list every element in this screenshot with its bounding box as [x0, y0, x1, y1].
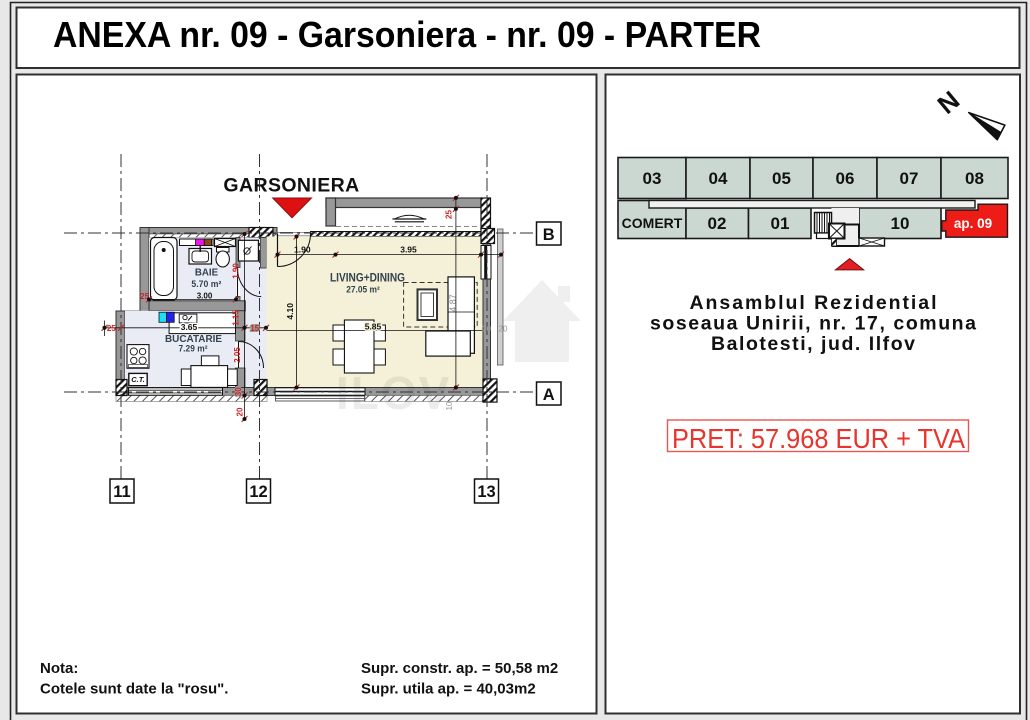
svg-text:soseaua Unirii, nr. 17, comuna: soseaua Unirii, nr. 17, comuna [650, 313, 976, 335]
svg-text:7.29 m²: 7.29 m² [179, 344, 208, 354]
svg-text:13: 13 [477, 483, 495, 501]
svg-text:3.65: 3.65 [181, 322, 198, 332]
svg-text:03: 03 [643, 169, 662, 188]
svg-text:GARSONIERA: GARSONIERA [223, 175, 359, 197]
svg-text:5.85: 5.85 [365, 321, 382, 331]
svg-text:5.70 m²: 5.70 m² [191, 279, 221, 289]
svg-text:Supr. constr. ap. = 50,58 m2: Supr. constr. ap. = 50,58 m2 [361, 660, 558, 677]
svg-text:Nota:: Nota: [40, 660, 78, 677]
svg-text:01: 01 [771, 214, 790, 233]
svg-text:02: 02 [708, 214, 727, 233]
svg-text:4.87: 4.87 [448, 294, 458, 312]
svg-text:25: 25 [107, 324, 116, 333]
svg-text:ANEXA nr. 09 - Garsoniera - nr: ANEXA nr. 09 - Garsoniera - nr. 09 - PAR… [53, 14, 761, 55]
svg-text:3.95: 3.95 [400, 244, 417, 254]
svg-text:LIVING+DINING: LIVING+DINING [330, 273, 405, 285]
svg-text:Supr. utila ap. = 40,03m2: Supr. utila ap. = 40,03m2 [361, 681, 536, 698]
svg-text:20: 20 [236, 407, 245, 416]
svg-text:20: 20 [499, 325, 508, 334]
svg-text:Cotele sunt date la "rosu".: Cotele sunt date la "rosu". [40, 681, 228, 698]
svg-text:05: 05 [772, 169, 791, 188]
svg-text:10: 10 [891, 214, 910, 233]
svg-text:1.90: 1.90 [232, 263, 241, 279]
svg-text:A: A [543, 386, 555, 404]
svg-text:PRET: 57.968 EUR + TVA: PRET: 57.968 EUR + TVA [672, 423, 965, 454]
svg-text:15: 15 [250, 324, 259, 333]
svg-text:ILOV: ILOV [336, 367, 451, 419]
svg-text:COMERT: COMERT [622, 215, 683, 231]
svg-text:27.05 m²: 27.05 m² [346, 285, 380, 295]
svg-text:3.00: 3.00 [197, 292, 213, 301]
svg-text:04: 04 [709, 169, 728, 188]
svg-text:4.10: 4.10 [285, 303, 295, 320]
svg-text:2.05: 2.05 [233, 347, 242, 363]
svg-text:30: 30 [482, 325, 491, 334]
svg-text:11: 11 [113, 483, 130, 501]
svg-text:C.T.: C.T. [131, 375, 145, 384]
svg-text:07: 07 [900, 169, 919, 188]
svg-text:30: 30 [234, 387, 243, 396]
svg-text:08: 08 [965, 169, 984, 188]
svg-text:BAIE: BAIE [195, 268, 219, 279]
svg-text:25: 25 [445, 210, 454, 219]
svg-text:06: 06 [836, 169, 855, 188]
svg-text:ap. 09: ap. 09 [954, 216, 992, 231]
svg-text:B: B [543, 226, 555, 244]
svg-text:12: 12 [249, 483, 267, 501]
svg-text:1.15: 1.15 [232, 310, 241, 326]
